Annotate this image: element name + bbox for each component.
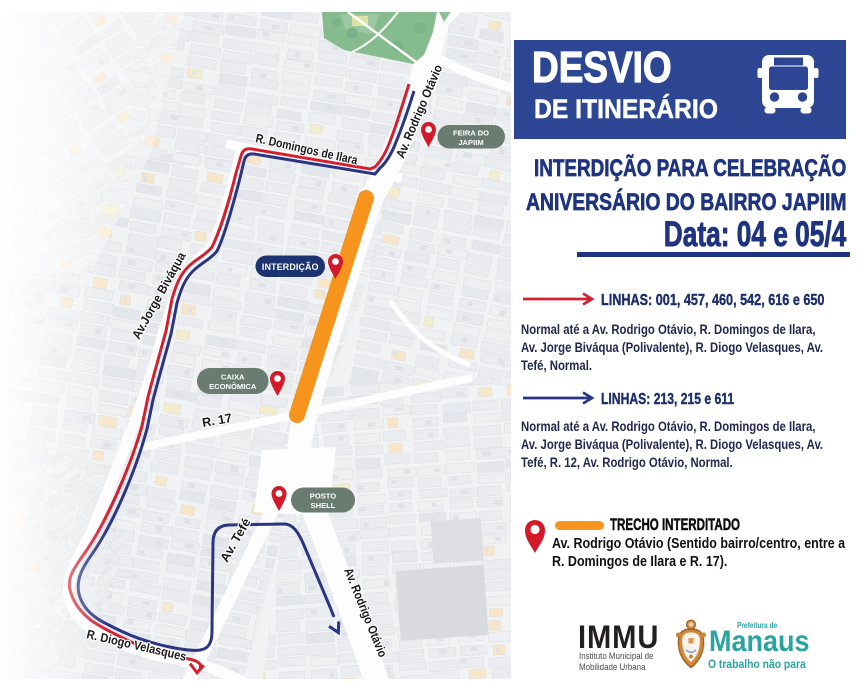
svg-text:FEIRA DO: FEIRA DO [453, 129, 489, 138]
svg-text:POSTO: POSTO [310, 491, 337, 500]
svg-text:SHELL: SHELL [311, 501, 336, 510]
svg-text:ECONÔMICA: ECONÔMICA [209, 382, 257, 391]
svg-text:JAPIIM: JAPIIM [458, 138, 483, 147]
svg-text:INTERDIÇÃO: INTERDIÇÃO [262, 262, 319, 272]
svg-text:CAIXA: CAIXA [221, 372, 245, 381]
